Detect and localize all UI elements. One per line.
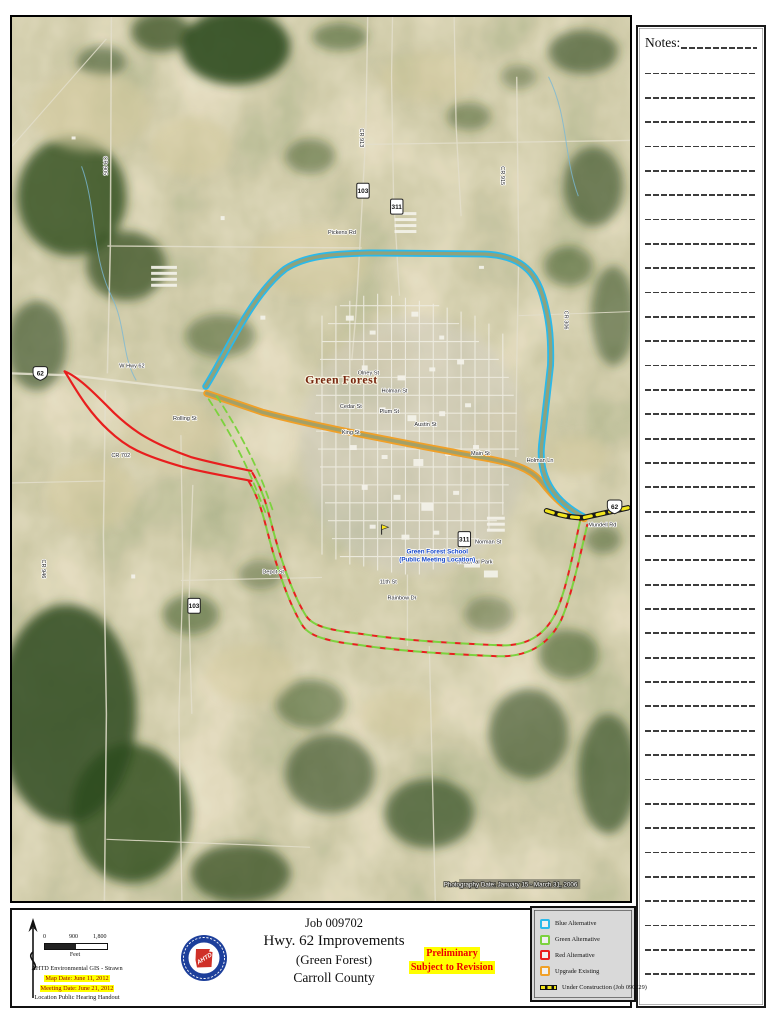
legend-label: Upgrade Existing [555,968,599,975]
legend-swatch-blue [540,919,550,929]
notes-panel: Notes: [636,25,766,1008]
note-line [645,342,758,366]
note-line [645,707,758,731]
preliminary-stamp: Preliminary Subject to Revision [400,947,504,974]
svg-text:311: 311 [392,204,403,211]
street-label: Main St [471,451,490,457]
job-number: Job 009702 [238,914,430,932]
legend-label: Green Alternative [555,936,600,943]
svg-text:311: 311 [459,536,470,543]
note-line [645,293,758,317]
school-label-line1: Green Forest School [407,549,469,556]
note-line [645,391,758,415]
note-line [645,513,758,537]
notes-first-line [681,47,757,49]
note-line [645,780,758,804]
street-label: CR 306 [562,311,568,330]
note-line [645,805,758,829]
street-label: Rainbow Dr [388,595,417,601]
scale-tick: 1,800 [93,934,107,940]
street-label: Mundell Rd [588,523,616,529]
street-label: Plum St [380,409,400,415]
street-label: CR 946 [40,560,46,579]
note-line [645,440,758,464]
street-label: W Hwy 62 [119,363,144,369]
note-line [645,50,758,74]
legend-item: Under Construction (Job 090229) [540,979,632,995]
street-label: CR 905 [101,156,107,175]
note-line [645,537,758,561]
street-label: Depot St [262,569,284,575]
note-line [645,318,758,342]
legend-item: Blue Alternative [540,916,632,932]
location-line: Location Public Hearing Handout [16,993,138,1003]
note-line [645,74,758,98]
note-line [645,926,758,950]
meeting-date: Meeting Date: June 21, 2012 [40,985,115,992]
note-line [645,220,758,244]
note-line [645,464,758,488]
map-date: Map Date: June 11, 2012 [44,975,109,982]
scale-bar-graphic [44,943,108,951]
city-label: Green Forest [305,372,378,386]
photography-date-label: Photography Date: January 15 - March 31,… [444,882,578,889]
credit-line: AHTD Environmental GIS - Strawn [16,964,138,974]
legend-swatch-orange [540,966,550,976]
legend-box: Blue AlternativeGreen AlternativeRed Alt… [530,906,636,1002]
state-route-marker: 311 [391,199,403,214]
note-line [645,610,758,634]
legend-label: Blue Alternative [555,920,596,927]
note-line [645,561,758,585]
street-label: Holman St [382,388,408,394]
notes-title: Notes: [645,36,680,50]
street-label: Cedar St [340,404,362,410]
note-line [645,172,758,196]
notes-header: Notes: [645,33,758,50]
note-line [645,683,758,707]
aerial-map: 6262103311311103 Pickens RdCR 915CR 905C… [12,17,630,901]
note-line [645,123,758,147]
note-line [645,269,758,293]
note-line [645,147,758,171]
note-line [645,586,758,610]
legend-swatch-red [540,950,550,960]
legend-swatch-green [540,935,550,945]
legend-label: Red Alternative [555,952,595,959]
street-label: Austin St [414,422,437,428]
svg-text:103: 103 [358,188,369,195]
legend-item: Upgrade Existing [540,963,632,979]
stamp-line1: Preliminary [424,947,479,961]
street-label: CR 915 [499,166,505,185]
legend-label: Under Construction (Job 090229) [562,984,647,991]
note-line [645,829,758,853]
note-line [645,366,758,390]
note-line [645,902,758,926]
legend-item: Green Alternative [540,932,632,948]
legend-swatch-construction [540,985,557,990]
note-line [645,878,758,902]
note-line [645,99,758,123]
note-line [645,634,758,658]
street-label: 11th St [380,579,398,585]
stamp-line2: Subject to Revision [409,961,495,975]
credits-block: AHTD Environmental GIS - Strawn Map Date… [16,964,138,1003]
svg-text:62: 62 [37,370,45,377]
note-line [645,756,758,780]
scale-tick: 900 [69,934,78,940]
street-label: Pickens Rd [328,230,356,236]
note-line [645,245,758,269]
scale-tick: 0 [43,934,46,940]
note-line [645,488,758,512]
ahtd-logo: AHTD [180,934,228,982]
street-label: Holman Ln [527,458,554,464]
street-label: King St [342,430,360,436]
note-line [645,732,758,756]
note-line [645,853,758,877]
note-line [645,951,758,975]
notes-lines [645,50,758,975]
street-label: CR 913 [358,128,364,147]
state-route-marker: 103 [357,183,369,198]
map-panel: 6262103311311103 Pickens RdCR 915CR 905C… [10,15,632,903]
note-line [645,196,758,220]
legend-items: Blue AlternativeGreen AlternativeRed Alt… [540,916,632,995]
svg-text:103: 103 [189,603,200,610]
street-label: CR 702 [111,453,130,459]
legend-item: Red Alternative [540,948,632,964]
svg-text:62: 62 [611,504,619,511]
note-line [645,659,758,683]
scale-unit: Feet [44,952,106,958]
state-route-marker: 311 [458,532,470,547]
note-line [645,415,758,439]
street-label: Norman St [475,540,502,546]
street-label: Rolling St [173,416,197,422]
footer-panel: 0 900 1,800 Feet AHTD Environmental GIS … [10,908,632,1008]
state-route-marker: 103 [188,598,200,613]
school-label-line2: (Public Meeting Location) [399,557,475,564]
